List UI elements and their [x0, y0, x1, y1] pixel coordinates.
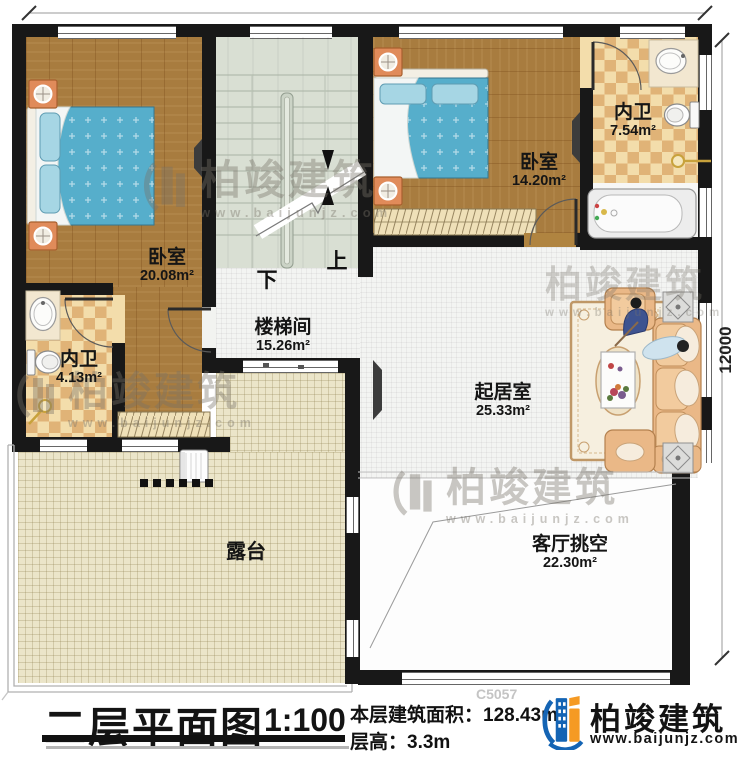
room-name: 露台 — [226, 542, 266, 563]
label-stairs-down: 下 — [257, 264, 278, 294]
label-living: 起居室 25.33m² — [474, 383, 531, 420]
room-name: 内卫 — [610, 103, 656, 123]
void-diagonals — [370, 484, 676, 648]
room-area: 14.20m² — [512, 173, 566, 190]
room-name: 卧室 — [140, 248, 194, 268]
label-bedroom-left: 卧室 20.08m² — [140, 248, 194, 285]
door-gap-bath-left — [112, 295, 125, 343]
end-table-top — [663, 292, 693, 322]
room-area: 25.33m² — [474, 403, 531, 420]
room-area: 20.08m² — [140, 268, 194, 285]
ac-unit — [180, 450, 208, 482]
bed-left — [27, 107, 154, 225]
room-name: 起居室 — [474, 383, 531, 403]
sink-right — [649, 40, 698, 87]
room-area: 4.13m² — [56, 370, 102, 387]
label-bath-right: 内卫 7.54m² — [610, 103, 656, 140]
door-gap-bath-right — [580, 37, 593, 88]
label-bedroom-right: 卧室 14.20m² — [512, 153, 566, 190]
room-name: 内卫 — [56, 350, 102, 370]
title-underline — [42, 735, 345, 742]
nightstand — [29, 222, 57, 250]
stat-area: 本层建筑面积：128.43m² — [350, 700, 564, 727]
nightstand — [29, 80, 57, 108]
stair-break-mask — [258, 168, 362, 232]
towel-ring-right — [672, 155, 711, 167]
dimension-right-value: 12000 — [704, 324, 748, 376]
dimension-top — [22, 6, 712, 20]
bed-right — [374, 69, 488, 178]
terrace-parapet — [2, 445, 352, 700]
armchair-bottom — [605, 430, 655, 472]
plan-scale: 1:100 — [264, 702, 346, 739]
label-void: 客厅挑空 22.30m² — [532, 535, 608, 572]
tv-living — [373, 360, 382, 420]
nightstand — [374, 177, 402, 205]
tv-bedroom-left — [194, 139, 202, 177]
drawing-code: C5057 — [476, 686, 517, 702]
label-stairs-up: 上 — [327, 245, 348, 275]
toilet-right — [665, 102, 700, 128]
label-terrace: 露台 — [226, 542, 266, 563]
room-area: 22.30m² — [532, 555, 608, 572]
stat-height-label: 层高： — [350, 732, 407, 753]
stat-height-value: 3.3m — [407, 732, 450, 753]
door-bath-right — [593, 42, 641, 90]
brand-logo-icon — [541, 696, 585, 750]
window-tick — [263, 363, 269, 367]
coffee-table — [601, 352, 635, 408]
label-stair-hall: 楼梯间 15.26m² — [254, 318, 311, 355]
sink-left — [26, 291, 60, 340]
stat-area-label: 本层建筑面积： — [350, 705, 483, 726]
door-gap-bedroom-right — [524, 233, 576, 247]
stair-arrow-down-icon — [322, 150, 334, 170]
room-area: 15.26m² — [254, 338, 311, 355]
towel-ring-left — [29, 400, 51, 424]
wardrobe-left — [118, 412, 210, 437]
label-bath-left: 内卫 4.13m² — [56, 350, 102, 387]
stat-floor-height: 层高：3.3m — [350, 727, 450, 754]
brand-url: www.baijunjz.com — [590, 731, 739, 747]
door-bath-left — [65, 299, 113, 347]
stair-break-line — [256, 172, 364, 236]
tv-bedroom-right — [572, 112, 580, 163]
bathtub — [588, 189, 696, 238]
door-gap-bedroom-left — [202, 307, 216, 348]
end-table-bottom — [663, 443, 693, 473]
floor-plan-page: 卧室 20.08m² 内卫 4.13m² 卧室 14.20m² 内卫 7.54m… — [0, 0, 750, 760]
wardrobe-right — [374, 209, 536, 235]
room-name: 楼梯间 — [254, 318, 311, 338]
void-boundary — [358, 472, 690, 478]
title-underline-shadow — [46, 746, 349, 749]
nightstand — [374, 48, 402, 76]
room-area: 7.54m² — [610, 123, 656, 140]
room-name: 客厅挑空 — [532, 535, 608, 555]
window-tick — [298, 365, 304, 369]
staircase — [216, 37, 364, 268]
room-name: 卧室 — [512, 153, 566, 173]
